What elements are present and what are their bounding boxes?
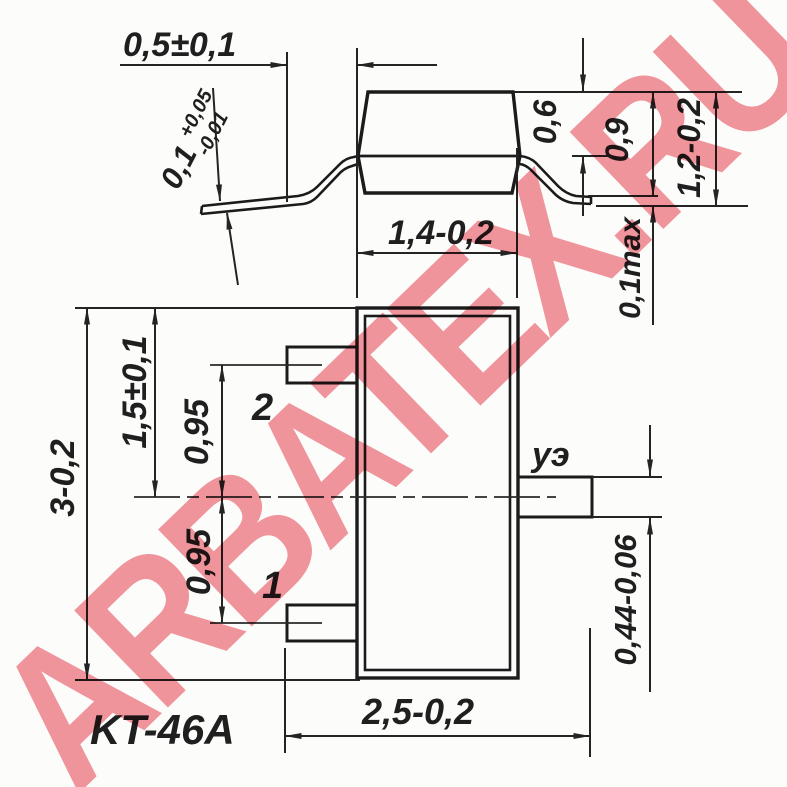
top-view-body-outline [357,308,518,678]
side-view-dimension-lines [120,38,748,325]
pin-2-label: 2 [251,387,273,429]
dim-half-length-label: 1,5±0,1 [116,335,154,448]
dim-body-thickness-label: 0,9 [599,118,635,163]
package-drawing-svg: 0,5±0,1 0,1 +0,05 -0,01 1,4-0,2 0,6 0,9 … [0,0,787,787]
dim-total-height-label: 1,2-0,2 [671,98,707,198]
pin-1-label: 1 [262,565,283,607]
side-view-right-lead [520,156,591,204]
top-view-dimension-lines [75,308,662,757]
dim-body-length-label: 3-0,2 [44,439,82,517]
dim-lead3-width-label: 0,44-0,06 [608,534,643,666]
dim-overall-width-label: 2,5-0,2 [361,691,474,732]
side-view-body [358,92,520,193]
side-view: 0,5±0,1 0,1 +0,05 -0,01 1,4-0,2 0,6 0,9 … [120,26,748,325]
side-view-left-lead [201,156,358,214]
dim-lead-foot-length-label: 0,5±0,1 [123,26,236,64]
dim-top-to-seam-label: 0,6 [527,100,563,145]
top-view: 3-0,2 1,5±0,1 0,95 0,95 2,5-0,2 0,44-0,0… [44,308,662,757]
dim-standoff-label: 0,1max [614,216,647,319]
dim-lead-thickness-label: 0,1 +0,05 -0,01 [142,74,243,199]
top-view-body-inner [365,316,510,670]
dim-lead-pitch-upper-label: 0,95 [178,398,216,465]
drawing-page: 0,5±0,1 0,1 +0,05 -0,01 1,4-0,2 0,6 0,9 … [0,0,787,787]
dim-lead-pitch-lower-label: 0,95 [180,528,218,595]
pin-3-label: уэ [530,436,570,474]
dim-body-width-label: 1,4-0,2 [388,214,494,252]
package-name-label: KT-46A [90,706,235,753]
